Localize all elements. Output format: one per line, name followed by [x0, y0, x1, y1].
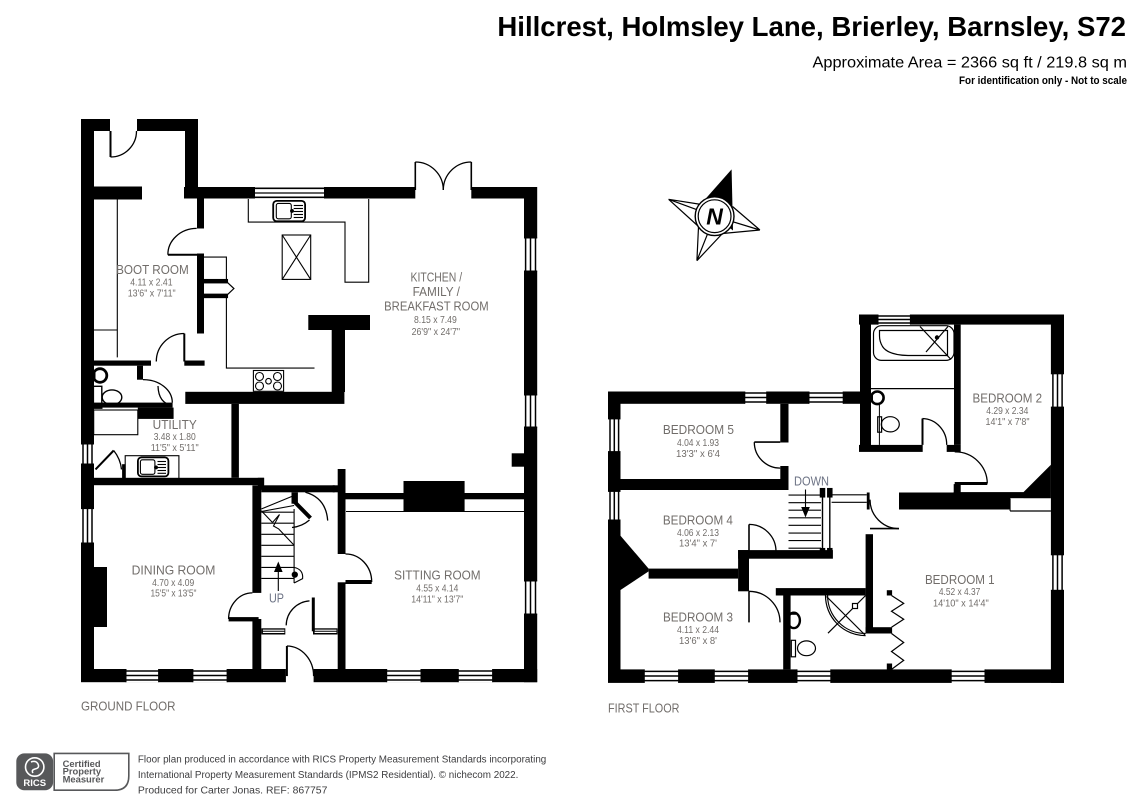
svg-text:BEDROOM 2: BEDROOM 2: [973, 390, 1043, 405]
svg-text:Produced for Carter Jonas. R: Produced for Carter Jonas. REF: 867757: [138, 786, 328, 797]
svg-text:BEDROOM 3: BEDROOM 3: [663, 609, 733, 624]
svg-text:13'6" x 8': 13'6" x 8': [679, 636, 717, 647]
svg-text:8.15 x 7.49: 8.15 x 7.49: [414, 315, 457, 326]
svg-text:Hillcrest, Holmsley Lane, Brie: Hillcrest, Holmsley Lane, Brierley, Barn…: [497, 11, 1126, 42]
svg-text:13'4" x 7': 13'4" x 7': [679, 539, 717, 550]
svg-text:BOOT ROOM: BOOT ROOM: [116, 262, 189, 277]
svg-text:BREAKFAST ROOM: BREAKFAST ROOM: [384, 299, 489, 314]
svg-text:13'3" x 6'4: 13'3" x 6'4: [676, 449, 720, 460]
svg-text:13'6" x 7'11": 13'6" x 7'11": [128, 289, 176, 300]
svg-text:4.55 x 4.14: 4.55 x 4.14: [416, 583, 458, 594]
svg-text:14'10" x 14'4": 14'10" x 14'4": [933, 598, 989, 609]
svg-text:N: N: [706, 204, 723, 230]
svg-text:14'11" x 13'7": 14'11" x 13'7": [411, 595, 463, 606]
svg-text:Approximate Area = 2366 sq ft: Approximate Area = 2366 sq ft / 219.8 sq…: [813, 55, 1128, 72]
svg-text:DOWN: DOWN: [794, 475, 829, 489]
svg-text:4.04 x 1.93: 4.04 x 1.93: [677, 438, 719, 449]
svg-text:4.52 x 4.37: 4.52 x 4.37: [939, 587, 981, 598]
svg-text:BEDROOM 4: BEDROOM 4: [663, 512, 733, 527]
svg-text:GROUND FLOOR: GROUND FLOOR: [81, 699, 176, 714]
svg-text:FAMILY /: FAMILY /: [413, 284, 461, 299]
svg-text:RICS: RICS: [23, 778, 46, 789]
svg-text:4.06 x 2.13: 4.06 x 2.13: [677, 528, 719, 539]
svg-text:4.11 x 2.44: 4.11 x 2.44: [677, 625, 719, 636]
svg-text:26'9" x 24'7": 26'9" x 24'7": [412, 327, 461, 338]
svg-text:4.11 x 2.41: 4.11 x 2.41: [130, 277, 173, 288]
svg-text:4.70 x 4.09: 4.70 x 4.09: [152, 578, 194, 589]
svg-text:UP: UP: [269, 592, 284, 606]
svg-text:SITTING ROOM: SITTING ROOM: [394, 567, 481, 582]
svg-text:11'5" x 5'11": 11'5" x 5'11": [151, 443, 199, 454]
svg-text:For identification only - Not: For identification only - Not to scale: [959, 75, 1127, 87]
svg-text:14'1" x 7'8": 14'1" x 7'8": [986, 417, 1030, 428]
svg-text:3.48 x 1.80: 3.48 x 1.80: [154, 432, 196, 443]
svg-text:KITCHEN /: KITCHEN /: [411, 269, 463, 284]
svg-text:Measurer: Measurer: [63, 773, 105, 784]
svg-text:15'5" x 13'5": 15'5" x 13'5": [151, 589, 197, 600]
svg-text:BEDROOM 5: BEDROOM 5: [663, 422, 734, 437]
svg-text:UTILITY: UTILITY: [153, 417, 197, 432]
svg-text:4.29 x 2.34: 4.29 x 2.34: [986, 406, 1028, 417]
svg-text:FIRST FLOOR: FIRST FLOOR: [608, 701, 680, 716]
svg-text:DINING ROOM: DINING ROOM: [132, 563, 216, 578]
svg-text:Floor plan produced in accorda: Floor plan produced in accordance with R…: [138, 755, 546, 766]
svg-text:International Property Measure: International Property Measurement Stand…: [138, 770, 519, 781]
svg-text:BEDROOM 1: BEDROOM 1: [925, 572, 995, 587]
